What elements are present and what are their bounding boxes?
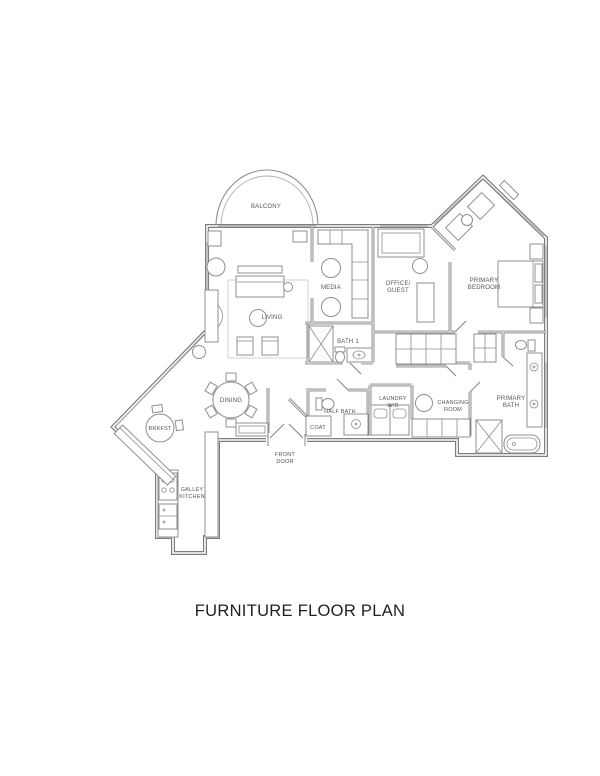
wall-cabinet: [205, 290, 218, 342]
room-label-bedroom-2: BEDROOM: [468, 285, 500, 291]
floor-plan-drawing: BALCONY LIVING MEDIA OFFICE/ GUEST PRIMA…: [0, 0, 600, 776]
room-label-kitchen-1: GALLEY: [181, 487, 204, 493]
corner-table: [462, 215, 473, 226]
halfbath-toilet-tank: [316, 398, 322, 410]
room-label-laundry-2: W/D: [387, 403, 398, 409]
page-title: FURNITURE FLOOR PLAN: [195, 602, 405, 620]
nightstand-2: [530, 308, 543, 323]
nightstand-1: [530, 244, 543, 259]
side-table: [284, 283, 293, 292]
pillow-1: [535, 264, 542, 282]
breakfast-chair-1: [152, 405, 163, 413]
washer-icon: [371, 405, 390, 435]
media-chair-2: [322, 298, 341, 317]
room-label-media: MEDIA: [321, 285, 341, 291]
room-label-frontdoor-1: FRONT: [275, 452, 295, 458]
balcony-rail-inner: [221, 176, 313, 226]
bath1-toilet-icon: [336, 352, 345, 363]
room-label-dining: DINING: [220, 398, 242, 404]
room-label-changing-1: CHANGING: [437, 400, 468, 406]
fridge-icon: [159, 504, 177, 529]
desk-chair: [413, 259, 428, 274]
entry-console: [236, 423, 268, 436]
room-label-pbath-2: BATH: [503, 403, 519, 409]
room-label-bedroom-1: PRIMARY: [470, 278, 499, 284]
room-label-living: LIVING: [262, 315, 283, 321]
room-label-changing-2: ROOM: [444, 407, 462, 413]
laundry-appliances: [371, 405, 409, 435]
armchair-left: [237, 337, 253, 355]
room-label-frontdoor-2: DOOR: [276, 459, 293, 465]
room-label-halfbath: HALF BATH: [324, 409, 356, 415]
halfbath-toilet-icon: [322, 399, 334, 410]
room-label-breakfast: BRKFST: [149, 426, 172, 432]
pbath-toilet-icon: [516, 341, 527, 350]
dryer-icon: [390, 405, 409, 435]
front-door-opening: [266, 433, 307, 446]
halfbath-vanity: [344, 414, 368, 435]
bath1-vanity: [347, 348, 372, 362]
closet-row: [412, 419, 470, 437]
room-label-pbath-1: PRIMARY: [497, 396, 526, 402]
dining-chair-4: [226, 419, 236, 427]
room-label-office-1: OFFICE/: [385, 281, 410, 287]
page: BALCONY LIVING MEDIA OFFICE/ GUEST PRIMA…: [0, 0, 600, 776]
pbath-toilet-tank: [528, 340, 535, 351]
room-label-laundry-1: LAUNDRY: [379, 396, 407, 402]
console-table: [238, 266, 282, 273]
kitchen-counter-right: [205, 432, 218, 537]
dining-chair-1: [226, 373, 236, 381]
armchair-right: [262, 337, 278, 355]
room-label-kitchen-2: KITCHEN: [179, 494, 205, 500]
pbath-vanity: [527, 353, 542, 427]
corner-cabinet: [208, 231, 221, 246]
room-label-coat: COAT: [310, 425, 326, 431]
balcony-planter: [293, 231, 307, 242]
pillow-2: [535, 285, 542, 303]
media-chair-1: [322, 259, 341, 278]
balcony-rail-outer: [216, 170, 318, 226]
room-label-office-2: GUEST: [387, 288, 409, 294]
side-desk: [417, 283, 434, 322]
accent-table: [193, 346, 206, 359]
round-chair: [207, 258, 225, 276]
ottoman: [416, 395, 433, 412]
room-label-balcony: BALCONY: [251, 204, 281, 210]
room-label-bath1: BATH 1: [337, 339, 359, 345]
sofa: [236, 276, 284, 297]
balcony-structure: [216, 170, 318, 226]
breakfast-chair-2: [175, 420, 183, 431]
